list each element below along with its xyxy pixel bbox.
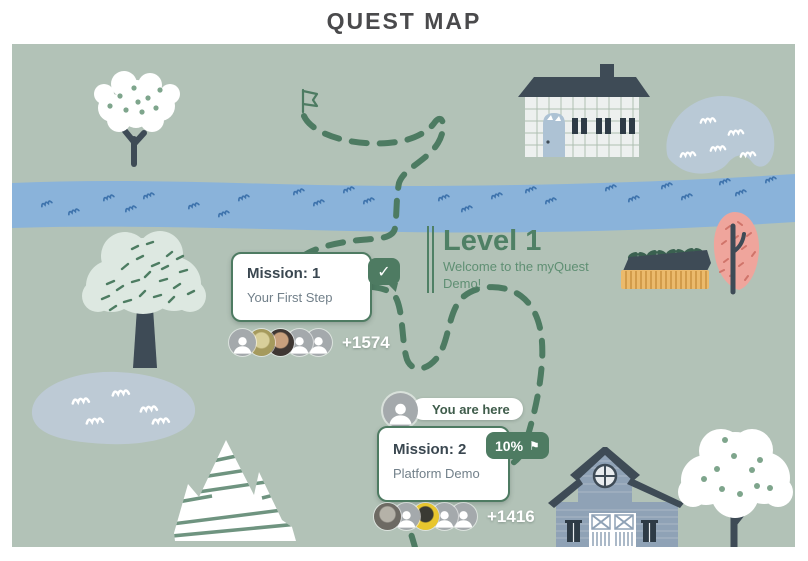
you-are-here-label: You are here (412, 398, 523, 420)
completed-badge: ✓ (368, 258, 400, 285)
person-icon (386, 397, 415, 428)
level-block: Level 1 Welcome to the myQuest Demo! (427, 226, 601, 293)
check-icon: ✓ (377, 262, 390, 282)
participants-count: +1416 (487, 507, 535, 527)
participant-avatar (229, 329, 256, 356)
mission-subtitle: Platform Demo (393, 466, 508, 481)
you-are-here-avatar (383, 393, 418, 428)
page-title: QUEST MAP (0, 8, 808, 35)
level-subtitle: Welcome to the myQuest Demo! (443, 259, 601, 293)
quest-map-page: QUEST MAP (0, 0, 808, 561)
house-illustration (518, 64, 650, 157)
mission-title: Mission: 1 (247, 265, 370, 282)
mission-subtitle: Your First Step (247, 290, 370, 305)
progress-badge: 10% ⚑ (486, 432, 549, 459)
river-illustration (12, 174, 795, 233)
tree-illustration (82, 231, 206, 368)
pink-tree-illustration (714, 212, 759, 292)
mission-card-1[interactable]: Mission: 1 Your First Step ✓ (231, 252, 372, 322)
pond-illustration (32, 372, 195, 444)
quest-map: Level 1 Welcome to the myQuest Demo! Mis… (12, 44, 795, 547)
progress-value: 10% (495, 438, 523, 454)
tree-illustration (94, 71, 180, 164)
mission-1-participants: +1574 (229, 329, 390, 356)
participants-count: +1574 (342, 333, 390, 353)
participant-photo-avatar (374, 503, 401, 530)
mission-card-2[interactable]: Mission: 2 Platform Demo 10% ⚑ (377, 426, 510, 502)
mountains-illustration (172, 440, 298, 541)
flag-icon (303, 90, 317, 112)
level-title: Level 1 (443, 226, 601, 256)
flag-icon: ⚑ (529, 440, 540, 452)
garden-bed-illustration (621, 248, 711, 289)
pond-illustration (666, 96, 774, 174)
barn-illustration (548, 447, 684, 547)
mission-2-participants: +1416 (374, 503, 535, 530)
tree-illustration (678, 429, 793, 547)
